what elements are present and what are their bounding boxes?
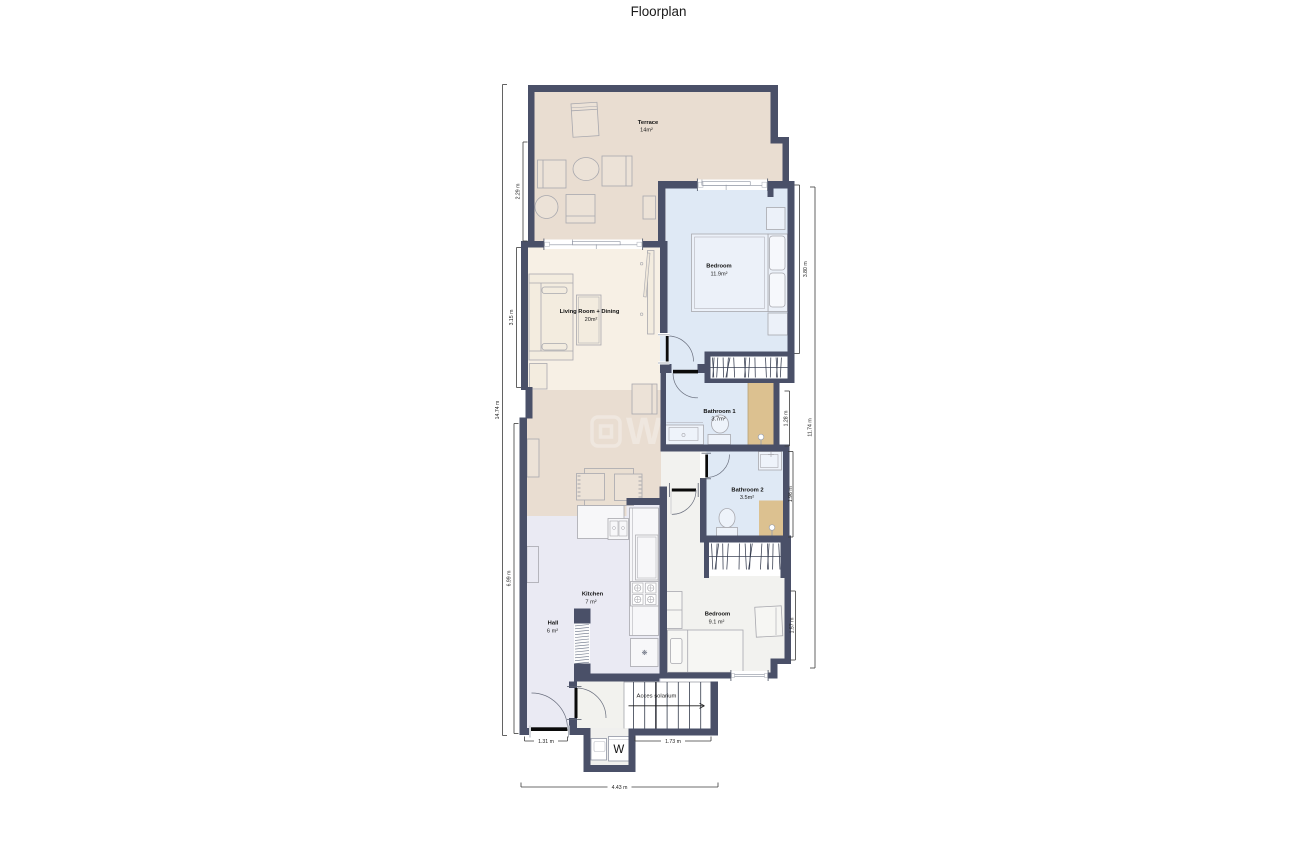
svg-text:2.29 m: 2.29 m xyxy=(516,184,522,200)
svg-text:Bedroom: Bedroom xyxy=(706,264,731,270)
svg-text:3.15 m: 3.15 m xyxy=(509,310,515,326)
svg-text:9.1 m²: 9.1 m² xyxy=(709,620,725,626)
svg-text:7 m²: 7 m² xyxy=(585,600,596,606)
svg-text:Terrace: Terrace xyxy=(638,120,659,126)
svg-text:Kitchen: Kitchen xyxy=(582,592,604,598)
svg-text:W: W xyxy=(626,411,662,453)
svg-text:Living Room + Dining: Living Room + Dining xyxy=(560,309,620,315)
svg-text:11.9m²: 11.9m² xyxy=(711,272,728,278)
svg-text:14m²: 14m² xyxy=(640,128,653,134)
svg-text:4.43 m: 4.43 m xyxy=(612,785,628,791)
svg-text:20m²: 20m² xyxy=(585,317,598,323)
svg-text:6.99 m: 6.99 m xyxy=(507,571,513,587)
svg-text:11.74 m: 11.74 m xyxy=(808,418,814,436)
svg-text:❋: ❋ xyxy=(642,649,648,657)
svg-text:1.73 m: 1.73 m xyxy=(665,739,681,745)
svg-text:3.7m²: 3.7m² xyxy=(711,417,725,423)
svg-text:W: W xyxy=(613,744,624,756)
svg-text:1.57 m: 1.57 m xyxy=(790,618,796,634)
svg-text:Floorplan: Floorplan xyxy=(631,4,687,19)
svg-text:3.80 m: 3.80 m xyxy=(803,261,809,277)
svg-text:6 m²: 6 m² xyxy=(547,629,558,635)
svg-text:1.28 m: 1.28 m xyxy=(784,411,790,427)
svg-text:Bedroom: Bedroom xyxy=(705,612,730,618)
svg-text:14.74 m: 14.74 m xyxy=(495,401,501,420)
svg-text:Bathroom 2: Bathroom 2 xyxy=(731,488,763,494)
svg-text:1.31 m: 1.31 m xyxy=(538,739,554,745)
svg-text:3.5m²: 3.5m² xyxy=(740,495,754,501)
svg-text:Hall: Hall xyxy=(548,621,559,627)
svg-text:Acces solarium: Acces solarium xyxy=(637,694,677,700)
svg-text:Bathroom 1: Bathroom 1 xyxy=(703,409,736,415)
svg-text:1.96 m: 1.96 m xyxy=(788,486,794,502)
